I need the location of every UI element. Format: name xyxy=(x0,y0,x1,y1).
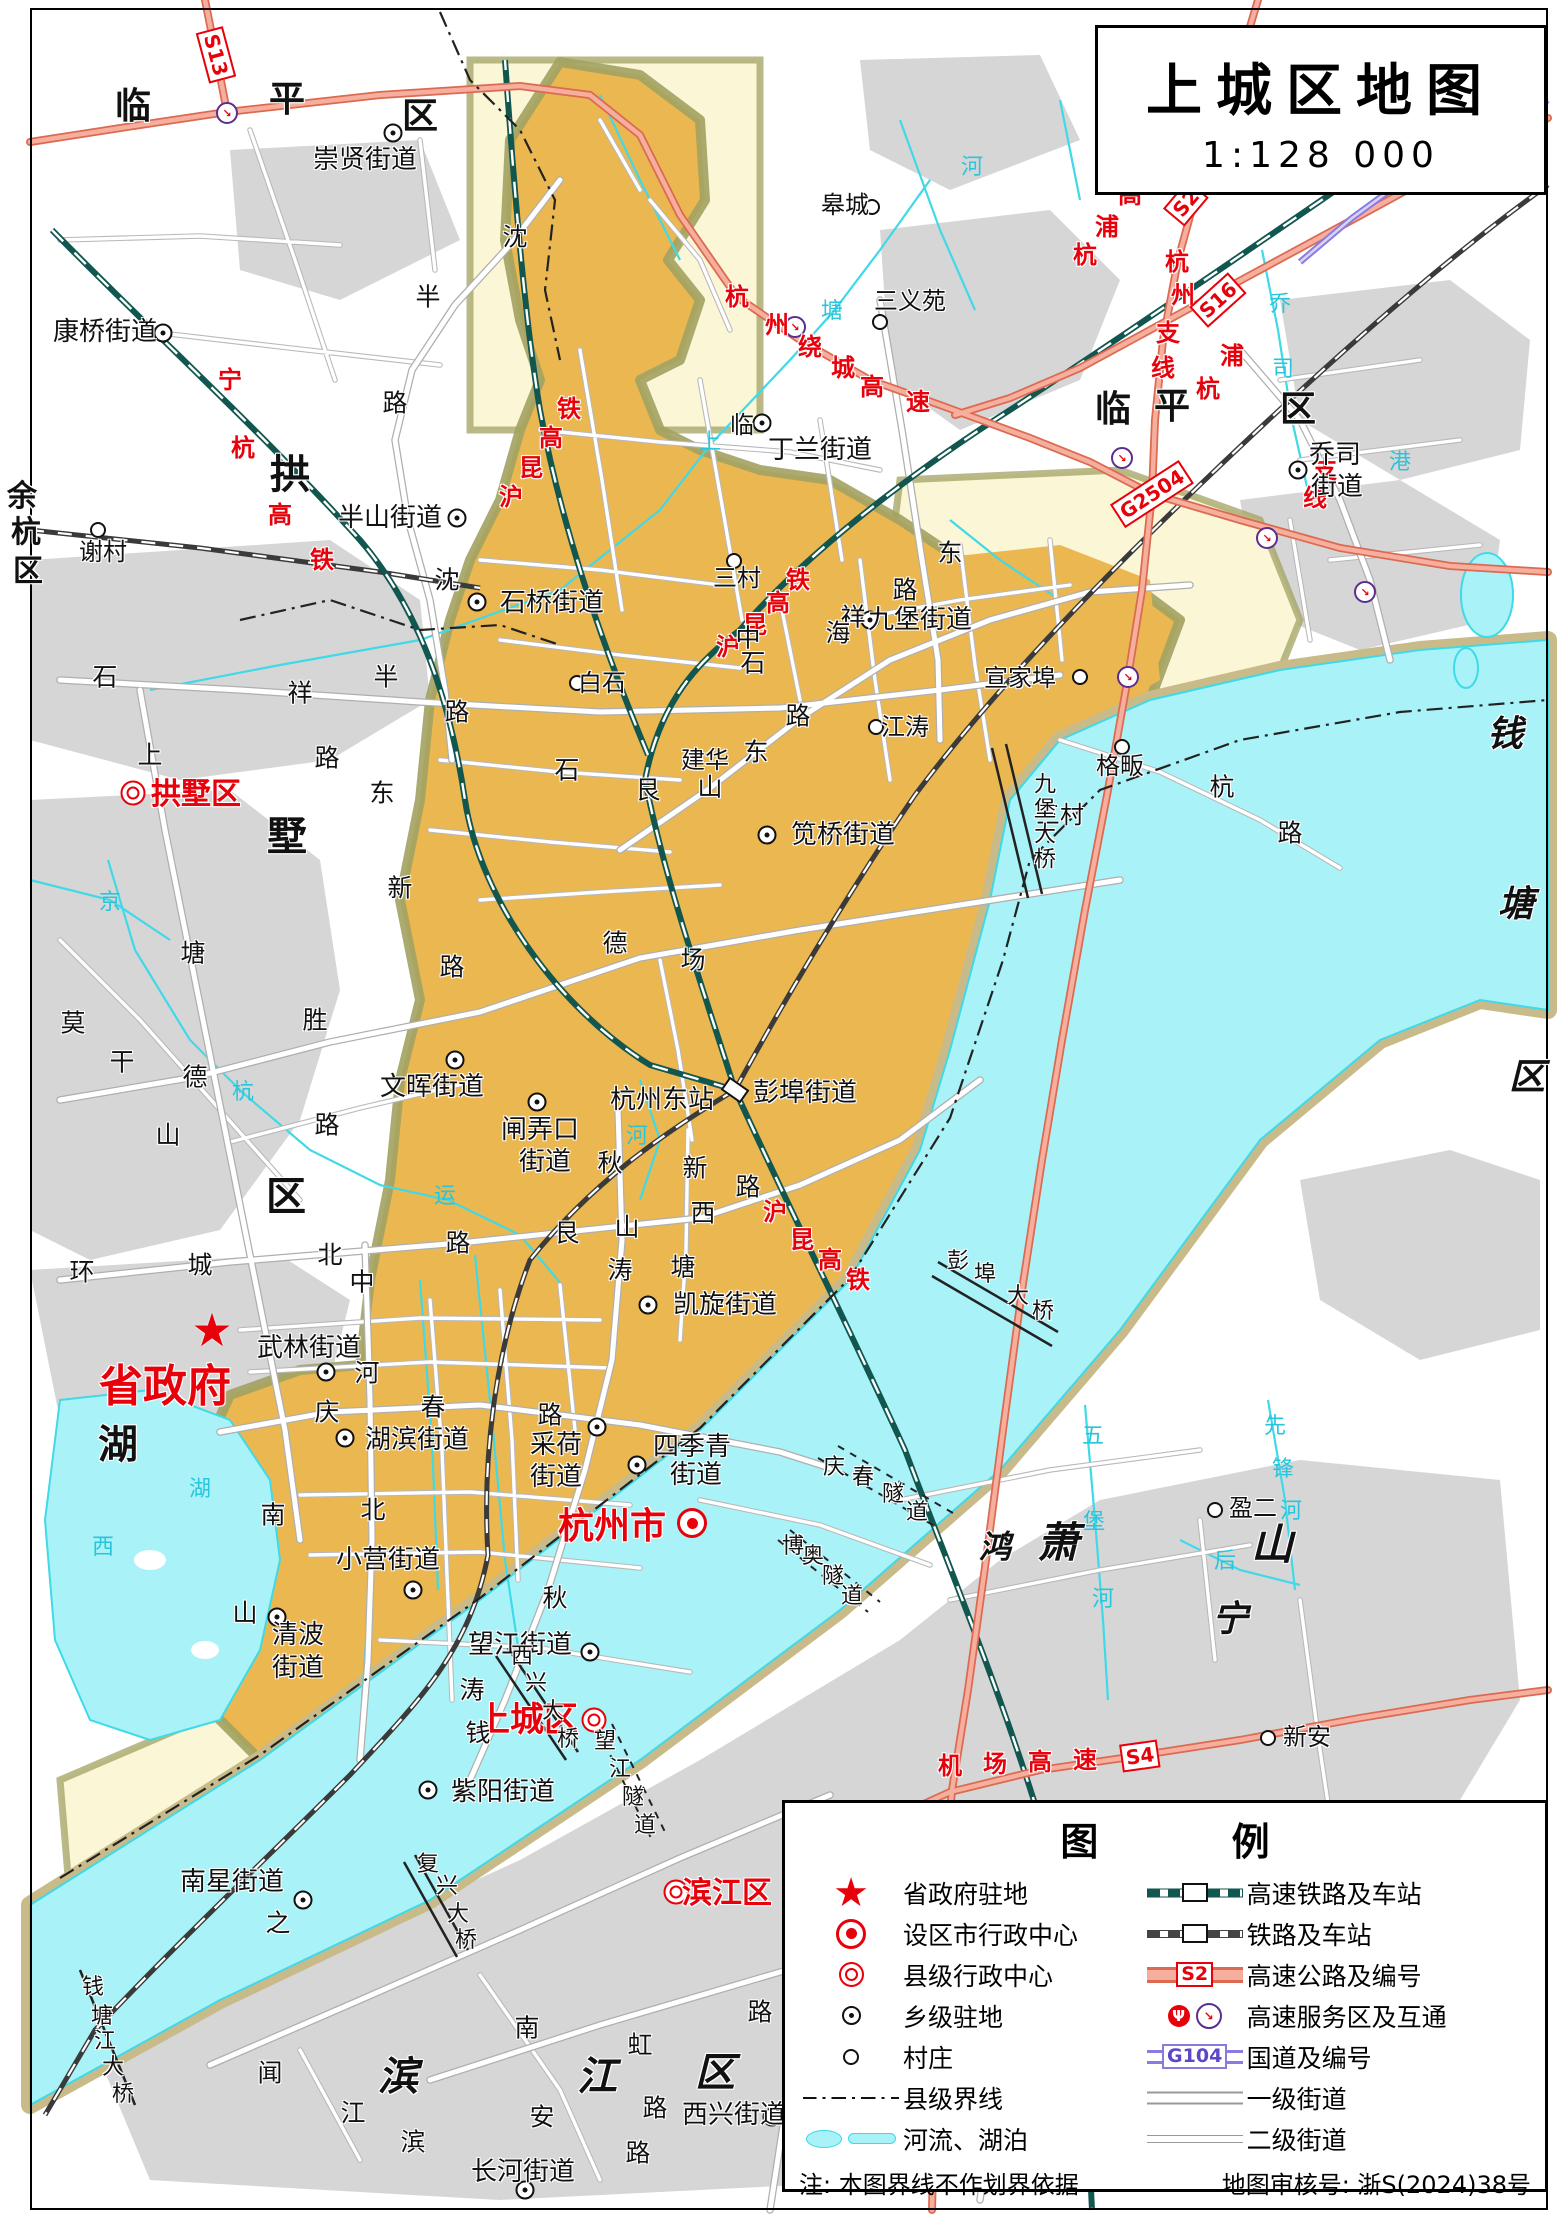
village-symbol xyxy=(1207,1502,1223,1518)
map-label: 杭州东站 xyxy=(610,1087,714,1113)
legend-label: 村庄 xyxy=(903,2039,953,2075)
map-label: 干 xyxy=(109,1050,134,1075)
map-label: 钱 xyxy=(82,1977,104,1999)
legend-row: 河流、湖泊 xyxy=(799,2118,1137,2159)
map-label: 速 xyxy=(906,390,930,414)
map-label: 秋 xyxy=(542,1586,567,1611)
legend-label: 河流、湖泊 xyxy=(903,2121,1028,2157)
map-label: 昆 xyxy=(790,1228,814,1252)
map-label: 彭埠街道 xyxy=(753,1080,857,1106)
map-label: 三村 xyxy=(713,566,761,590)
itc-symbol: ↘ xyxy=(1354,581,1376,603)
map-label: 大 xyxy=(102,2057,124,2079)
town-symbol xyxy=(1289,461,1308,480)
map-label: 江 xyxy=(609,1759,631,1781)
map-label: 速 xyxy=(1073,1748,1097,1772)
map-label: 省政府 xyxy=(99,1365,231,1409)
map-label: 石 xyxy=(92,665,117,690)
map-label: 南 xyxy=(514,2016,539,2041)
town-symbol xyxy=(294,1891,313,1910)
map-label: 路 xyxy=(444,700,469,725)
map-label: 铁 xyxy=(846,1268,870,1292)
map-label: 谢村 xyxy=(79,540,127,564)
map-label: 隧 xyxy=(622,1787,644,1809)
map-label: 崇贤街道 xyxy=(313,147,417,173)
itc-symbol: ↘ xyxy=(1117,666,1139,688)
map-label: 浦 xyxy=(1095,215,1119,239)
legend-label: 一级街道 xyxy=(1247,2080,1347,2116)
map-label: 安 xyxy=(529,2105,554,2130)
map-label: 白石 xyxy=(578,671,626,695)
map-label: 街道 xyxy=(1311,474,1363,500)
map-label: 望 xyxy=(594,1731,616,1753)
legend-note: 注: 本图界线不作划界依据 xyxy=(799,2165,1079,2200)
map-label: 凯旋街道 xyxy=(673,1292,777,1318)
map-label: 钱 xyxy=(1487,717,1523,753)
legend-approval: 地图审核号: 浙S(2024)38号 xyxy=(1222,2165,1531,2200)
map-label: 彭 xyxy=(947,1251,969,1273)
map-label: 北 xyxy=(360,1498,385,1523)
map-label: 中 xyxy=(349,1270,374,1295)
map-label: 中 xyxy=(735,626,760,651)
legend-label: 铁路及车站 xyxy=(1247,1916,1372,1952)
town-symbol xyxy=(419,1781,438,1800)
map-label: 湖滨街道 xyxy=(365,1427,469,1453)
legend-label: 省政府驻地 xyxy=(903,1875,1028,1911)
map-label: 滨 xyxy=(400,2130,425,2155)
map-label: 杭 xyxy=(1073,243,1097,267)
map-label: 大 xyxy=(1007,1286,1029,1308)
map-label: 高 xyxy=(268,503,292,527)
map-label: 区 xyxy=(1509,1060,1545,1096)
map-label: 区 xyxy=(402,99,438,135)
map-label: 昆 xyxy=(519,456,543,480)
map-label: 铁 xyxy=(310,548,334,572)
map-label: 海 xyxy=(825,621,850,646)
legend-row: 二级街道 xyxy=(1143,2118,1531,2159)
map-label: 虹 xyxy=(627,2033,652,2058)
map-label: 西兴街道 xyxy=(682,2102,786,2128)
map-label: 大 xyxy=(542,1701,564,1723)
map-label: 四季青 xyxy=(653,1434,731,1460)
map-label: 区 xyxy=(13,557,43,587)
map-label: 杭 xyxy=(231,436,255,460)
map-label: 墅 xyxy=(267,817,307,857)
map-label: 滨江区 xyxy=(682,1879,772,1909)
map-label: 司 xyxy=(1272,359,1294,381)
map-label: 清波 xyxy=(272,1622,324,1648)
map-label: 春 xyxy=(420,1395,445,1420)
legend-right-column: 高速铁路及车站铁路及车站S2高速公路及编号Ψ↘高速服务区及互通G104国道及编号… xyxy=(1143,1872,1531,2159)
village-symbol xyxy=(1072,669,1088,685)
map-label: 高 xyxy=(818,1248,842,1272)
map-label: 新 xyxy=(387,876,412,901)
map-label: 江 xyxy=(94,2031,116,2053)
map-label: 春 xyxy=(852,1467,874,1489)
village-symbol xyxy=(1260,1730,1276,1746)
legend-label: 高速公路及编号 xyxy=(1247,1957,1422,1993)
legend-label: 高速铁路及车站 xyxy=(1247,1875,1422,1911)
legend-row: 高速铁路及车站 xyxy=(1143,1872,1531,1913)
map-label: 丁兰街道 xyxy=(768,437,872,463)
town-symbol xyxy=(446,1051,465,1070)
legend-road2-icon xyxy=(1143,2128,1247,2150)
map-label: 街道 xyxy=(670,1462,722,1488)
map-label: 路 xyxy=(625,2141,650,2166)
map-label: 上 xyxy=(137,743,162,768)
legend-county-icon xyxy=(799,1962,903,1987)
map-label: 杭 xyxy=(11,518,41,548)
map-label: 后 xyxy=(1214,1551,1236,1573)
map-label: 杭州市 xyxy=(558,1509,666,1545)
town-symbol xyxy=(753,414,772,433)
map-label: 闸弄口 xyxy=(501,1117,579,1143)
town-symbol xyxy=(336,1429,355,1448)
map-label: 路 xyxy=(785,704,810,729)
map-label: 场 xyxy=(680,948,705,973)
map-label: 五 xyxy=(1082,1426,1104,1448)
legend-row: 铁路及车站 xyxy=(1143,1913,1531,1954)
map-label: 高 xyxy=(860,375,884,399)
map-label: 笕桥街道 xyxy=(791,822,895,848)
map-label: 石 xyxy=(740,651,765,676)
map-label: 乔 xyxy=(1269,294,1291,316)
legend-label: 高速服务区及互通 xyxy=(1247,1998,1447,2034)
star-symbol: ★ xyxy=(191,1307,232,1353)
map-label: 宣家埠 xyxy=(984,666,1056,690)
map-label: 格畈 xyxy=(1096,754,1144,778)
legend-hsr-icon xyxy=(1143,1882,1247,1904)
map-label: 路 xyxy=(735,1175,760,1200)
town-symbol xyxy=(528,1093,547,1112)
map-label: 博 xyxy=(782,1536,804,1558)
map-label: 塘 xyxy=(821,301,843,323)
town-symbol xyxy=(588,1418,607,1437)
legend-town-icon xyxy=(799,2006,903,2025)
map-label: 塘 xyxy=(91,2006,113,2028)
map-label: 塘 xyxy=(180,941,205,966)
map-label: 紫阳街道 xyxy=(451,1779,555,1805)
map-label: 高 xyxy=(539,426,563,450)
map-label: 路 xyxy=(892,578,917,603)
legend-row: 县级行政中心 xyxy=(799,1954,1137,1995)
map-label: 西 xyxy=(690,1201,715,1226)
legend-left-column: ★省政府驻地设区市行政中心县级行政中心乡级驻地村庄县级界线河流、湖泊 xyxy=(799,1872,1137,2159)
map-label: 河 xyxy=(1092,1589,1114,1611)
map-label: 江 xyxy=(577,2057,617,2097)
map-label: 杭 xyxy=(1209,775,1234,800)
map-label: 涛 xyxy=(459,1678,484,1703)
map-label: 康桥街道 xyxy=(53,319,157,345)
map-label: 大 xyxy=(447,1904,469,1926)
legend-row: 县级界线 xyxy=(799,2077,1137,2118)
map-label: 桥 xyxy=(1032,1301,1054,1323)
map-label: 区 xyxy=(1280,392,1316,428)
map-label: 北 xyxy=(317,1243,342,1268)
map-label: 堡 xyxy=(1083,1512,1105,1534)
map-label: 埠 xyxy=(974,1264,996,1286)
map-label: 南星街道 xyxy=(180,1869,284,1895)
town-symbol xyxy=(317,1363,336,1382)
map-label: 杭 xyxy=(232,1082,254,1104)
map-label: 州 xyxy=(765,313,789,337)
legend-row: 乡级驻地 xyxy=(799,1995,1137,2036)
map-label: 山 xyxy=(155,1123,180,1148)
town-symbol xyxy=(384,124,403,143)
map-label: 山 xyxy=(232,1601,257,1626)
town-symbol xyxy=(448,509,467,528)
map-label: 东 xyxy=(743,740,768,765)
map-label: 路 xyxy=(382,391,407,416)
map-label: 半 xyxy=(415,285,440,310)
map-label: 复 xyxy=(417,1854,439,1876)
map-label: 宁 xyxy=(1212,1602,1248,1638)
map-label: 武林街道 xyxy=(257,1335,361,1361)
map-label: 塘 xyxy=(1498,887,1534,923)
legend-nat1-icon: G104 xyxy=(1143,2046,1247,2068)
map-label: 采荷 xyxy=(530,1432,582,1458)
map-label: 桥 xyxy=(112,2084,134,2106)
map-label: 路 xyxy=(1277,821,1302,846)
map-label: 城 xyxy=(187,1253,212,1278)
map-label: 桥 xyxy=(557,1729,579,1751)
map-label: 江涛 xyxy=(881,715,929,739)
legend-village-icon xyxy=(799,2049,903,2065)
map-label: 庆 xyxy=(314,1400,339,1425)
map-label: 浦 xyxy=(1220,344,1244,368)
map-label: 半 xyxy=(373,665,398,690)
legend-row: S2高速公路及编号 xyxy=(1143,1954,1531,1995)
legend-road1-icon xyxy=(1143,2087,1247,2109)
legend-label: 县级界线 xyxy=(903,2080,1003,2116)
route-shield-S4: S4 xyxy=(1119,1739,1161,1772)
map-title: 上城区地图 xyxy=(1098,46,1544,127)
village-symbol xyxy=(90,522,106,538)
town-symbol xyxy=(404,1581,423,1600)
map-label: 锋 xyxy=(1272,1459,1294,1481)
legend-rail-icon xyxy=(1143,1923,1247,1945)
map-label: 杭 xyxy=(725,285,749,309)
itc-symbol: ↘ xyxy=(1111,447,1133,469)
map-label: 路 xyxy=(439,955,464,980)
map-label: 文晖街道 xyxy=(380,1074,484,1100)
map-label: 鸿 xyxy=(979,1531,1011,1563)
map-label: 塘 xyxy=(670,1255,695,1280)
map-label: 区 xyxy=(695,2053,735,2093)
legend-bound-icon xyxy=(799,2087,903,2109)
map-label: 九堡大桥 xyxy=(1031,772,1053,872)
map-label: 路 xyxy=(445,1231,470,1256)
map-label: 临 xyxy=(1095,392,1131,428)
map-label: 庆 xyxy=(823,1457,845,1479)
county-symbol xyxy=(121,781,146,806)
map-label: 道 xyxy=(906,1502,928,1524)
map-label: 石桥街道 xyxy=(500,590,604,616)
map-label: 艮 xyxy=(635,778,660,803)
map-label: 德 xyxy=(602,931,627,956)
map-page: ★↘↘↘↘↘↘ 临平区临平区余杭区拱墅区湖钱塘区萧山宁鸿滨江区拱墅区省政府杭州市… xyxy=(0,0,1561,2222)
map-label: 湖 xyxy=(98,1425,138,1465)
legend-label: 国道及编号 xyxy=(1247,2039,1372,2075)
legend-row: 设区市行政中心 xyxy=(799,1913,1137,1954)
map-label: 铁 xyxy=(786,568,810,592)
map-label: 路 xyxy=(537,1403,562,1428)
title-box: 上城区地图 1:128 000 xyxy=(1095,25,1547,195)
map-label: 路 xyxy=(314,1113,339,1138)
map-label: 路 xyxy=(747,2000,772,2025)
map-label: 南 xyxy=(260,1503,285,1528)
legend-water-icon xyxy=(799,2130,903,2148)
legend-label: 二级街道 xyxy=(1247,2121,1347,2157)
map-label: 新安 xyxy=(1283,1725,1331,1749)
legend-row: 一级街道 xyxy=(1143,2077,1531,2118)
map-label: 东 xyxy=(937,541,962,566)
map-label: 钱 xyxy=(465,1721,490,1746)
map-label: 环 xyxy=(69,1260,94,1285)
map-label: 湖 xyxy=(189,1479,211,1501)
map-label: 涛 xyxy=(607,1258,632,1283)
map-label: 先 xyxy=(1264,1416,1286,1438)
town-symbol xyxy=(468,593,487,612)
map-label: 路 xyxy=(314,746,339,771)
city-symbol xyxy=(677,1508,707,1538)
legend-row: G104国道及编号 xyxy=(1143,2036,1531,2077)
map-label: 九堡街道 xyxy=(868,607,972,633)
map-label: 莫 xyxy=(60,1011,85,1036)
itc-symbol: ↘ xyxy=(1256,527,1278,549)
legend-row: Ψ↘高速服务区及互通 xyxy=(1143,1995,1531,2036)
map-label: 沈 xyxy=(434,568,459,593)
legend-label: 设区市行政中心 xyxy=(903,1916,1078,1952)
map-label: 奥 xyxy=(802,1546,824,1568)
town-symbol xyxy=(628,1456,647,1475)
map-label: 河 xyxy=(354,1361,379,1386)
map-label: 拱墅区 xyxy=(151,780,241,810)
legend-title: 图 例 xyxy=(859,1811,1531,1866)
map-label: 临 xyxy=(730,413,754,437)
town-symbol xyxy=(758,826,777,845)
map-label: 桥 xyxy=(455,1930,477,1952)
map-label: 街道 xyxy=(272,1655,324,1681)
map-label: 区 xyxy=(266,1177,306,1217)
town-symbol xyxy=(639,1296,658,1315)
map-label: 沪 xyxy=(499,485,523,509)
legend-row: 村庄 xyxy=(799,2036,1137,2077)
map-label: 西 xyxy=(92,1537,114,1559)
map-label: 东 xyxy=(369,781,394,806)
map-label: 河 xyxy=(1280,1501,1302,1523)
map-label: 兴 xyxy=(436,1876,458,1898)
map-label: 杭 xyxy=(1165,250,1189,274)
map-label: 街道 xyxy=(530,1464,582,1490)
map-label: 河 xyxy=(626,1126,648,1148)
map-label: 石 xyxy=(554,758,579,783)
map-label: 道 xyxy=(634,1815,656,1837)
map-label: 盈二 xyxy=(1229,1496,1277,1520)
map-label: 场 xyxy=(983,1752,1007,1776)
map-label: 沈 xyxy=(502,225,527,250)
map-label: 绕 xyxy=(798,335,822,359)
village-symbol xyxy=(872,314,888,330)
map-label: 平 xyxy=(269,82,305,118)
map-label: 路 xyxy=(642,2096,667,2121)
map-label: 铁 xyxy=(557,397,581,421)
map-label: 山 xyxy=(1251,1524,1293,1566)
map-label: 建华 xyxy=(681,748,729,772)
map-label: 京 xyxy=(99,892,121,914)
map-label: 临 xyxy=(115,89,151,125)
map-label: 祥 xyxy=(287,681,312,706)
map-label: 隧 xyxy=(882,1484,904,1506)
map-label: 西 xyxy=(511,1646,533,1668)
map-label: 机 xyxy=(938,1754,962,1778)
map-label: 支 xyxy=(1156,321,1180,345)
map-label: 长河街道 xyxy=(471,2159,575,2185)
map-label: 宁 xyxy=(218,368,242,392)
map-label: 河 xyxy=(961,157,983,179)
map-label: 新 xyxy=(682,1156,707,1181)
map-label: 街道 xyxy=(519,1149,571,1175)
legend-expwy-icon: S2 xyxy=(1143,1964,1247,1986)
map-label: 之 xyxy=(265,1911,290,1936)
map-label: 线 xyxy=(1151,356,1175,380)
legend-label: 县级行政中心 xyxy=(903,1957,1053,1993)
map-label: 拱 xyxy=(270,455,310,495)
map-label: 三义苑 xyxy=(874,289,946,313)
map-label: 余 xyxy=(7,482,37,512)
legend-service-icon: Ψ↘ xyxy=(1143,2003,1247,2029)
map-label: 胜 xyxy=(302,1008,327,1033)
map-label: 德 xyxy=(182,1065,207,1090)
map-label: 山 xyxy=(697,775,722,800)
map-label: 小营街道 xyxy=(336,1547,440,1573)
map-label: 闻 xyxy=(257,2061,282,2086)
map-label: 萧 xyxy=(1037,1522,1079,1564)
map-label: 城 xyxy=(831,356,855,380)
legend-label: 乡级驻地 xyxy=(903,1998,1003,2034)
map-label: 港 xyxy=(1389,452,1411,474)
map-label: 乔司 xyxy=(1309,442,1361,468)
map-label: 运 xyxy=(434,1186,456,1208)
legend-box: 图 例 ★省政府驻地设区市行政中心县级行政中心乡级驻地村庄县级界线河流、湖泊 高… xyxy=(782,1800,1548,2192)
map-label: 杭 xyxy=(1196,377,1220,401)
map-scale: 1:128 000 xyxy=(1098,135,1544,176)
map-label: 平 xyxy=(1154,389,1190,425)
map-label: 艮 xyxy=(554,1221,579,1246)
map-label: 皋城 xyxy=(821,193,869,217)
map-label: 滨 xyxy=(378,2057,418,2097)
map-label: 上 xyxy=(699,432,721,454)
map-label: 沪 xyxy=(763,1200,787,1224)
itc-symbol: ↘ xyxy=(216,102,238,124)
map-label: 道 xyxy=(841,1586,863,1608)
map-label: 兴 xyxy=(525,1673,547,1695)
legend-row: ★省政府驻地 xyxy=(799,1872,1137,1913)
town-symbol xyxy=(581,1643,600,1662)
map-label: 高 xyxy=(766,591,790,615)
map-label: 江 xyxy=(340,2101,365,2126)
map-label: 秋 xyxy=(597,1151,622,1176)
legend-city-icon xyxy=(799,1919,903,1949)
map-label: 半山街道 xyxy=(338,505,442,531)
legend-star-icon: ★ xyxy=(799,1873,903,1913)
map-label: 山 xyxy=(614,1215,639,1240)
map-label: 高 xyxy=(1028,1750,1052,1774)
